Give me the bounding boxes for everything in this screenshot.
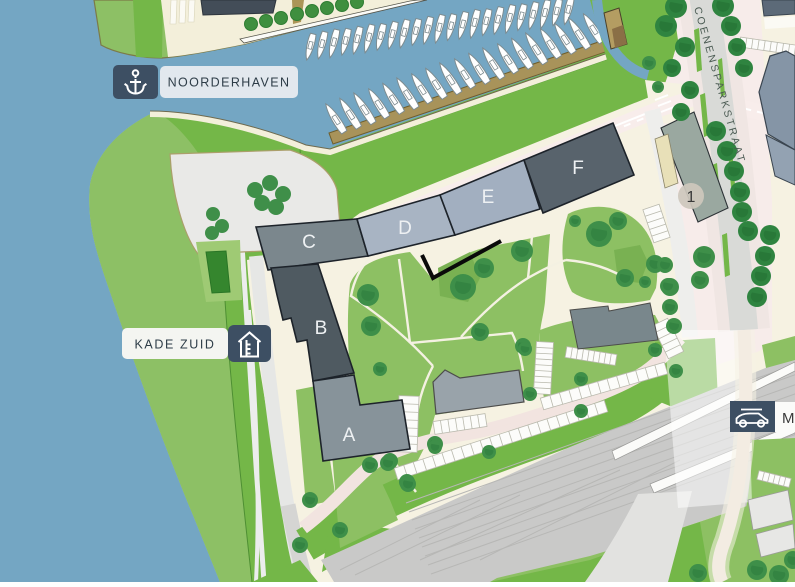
- svg-text:B: B: [315, 318, 328, 339]
- svg-text:M: M: [782, 410, 795, 427]
- svg-text:C: C: [302, 232, 316, 253]
- svg-text:D: D: [398, 218, 412, 239]
- svg-text:1: 1: [687, 189, 696, 206]
- svg-text:F: F: [572, 158, 584, 179]
- svg-text:NOORDERHAVEN: NOORDERHAVEN: [168, 76, 291, 90]
- svg-text:A: A: [343, 425, 356, 446]
- svg-text:E: E: [482, 187, 495, 208]
- svg-text:KADE ZUID: KADE ZUID: [134, 338, 215, 352]
